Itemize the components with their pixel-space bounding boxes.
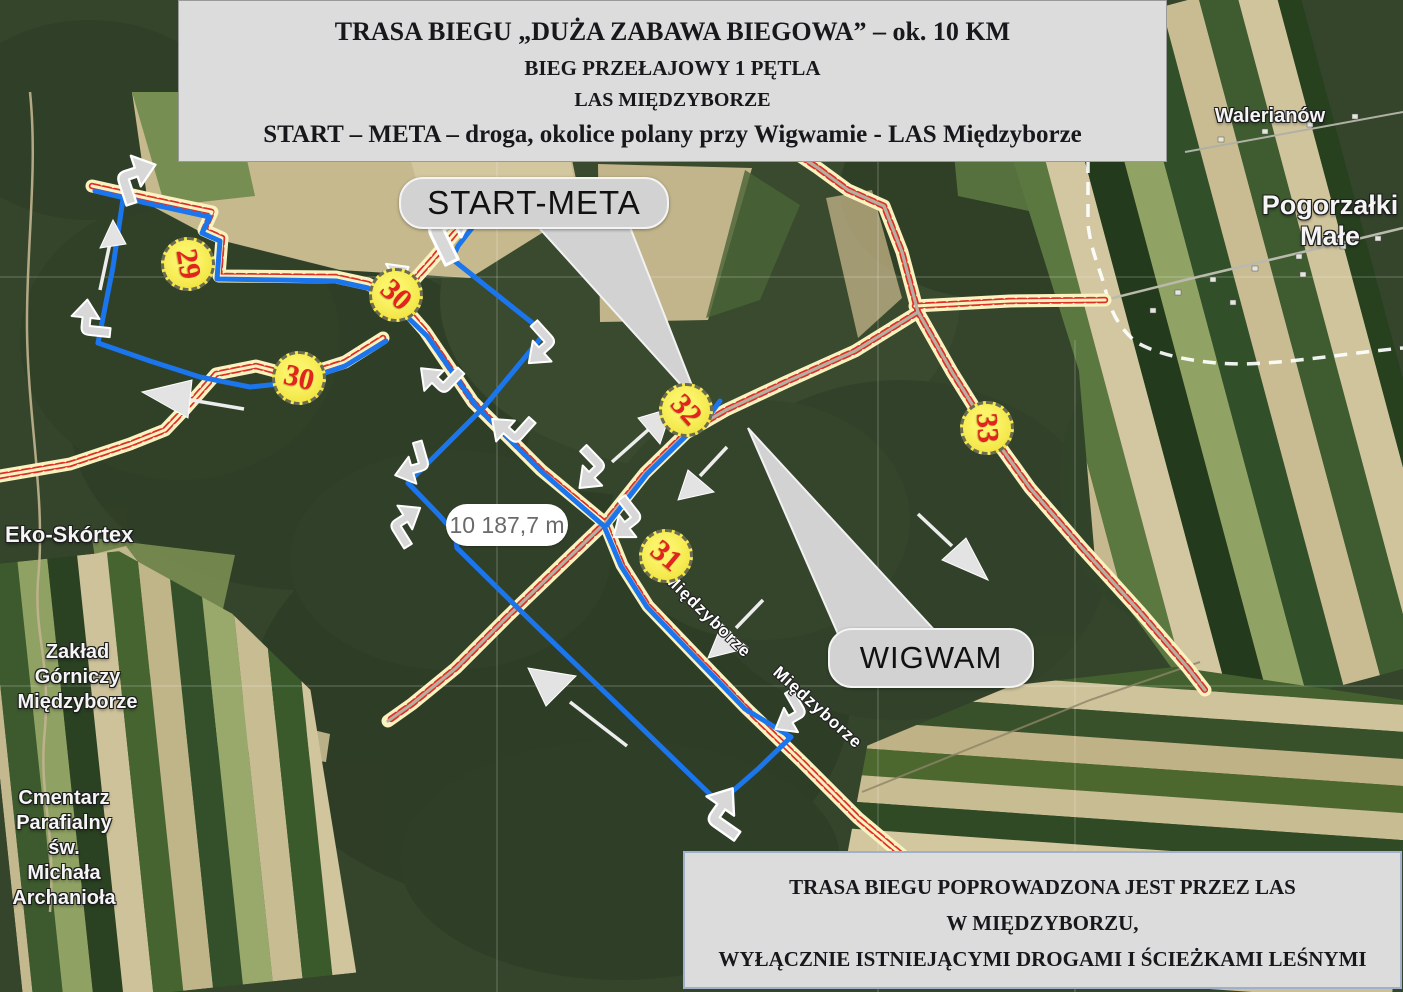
wigwam-callout-text: WIGWAM [860,640,1003,676]
place-label-line: Górniczy [10,665,145,690]
place-label-line: Archanioła [0,886,128,911]
checkpoint-marker-32[interactable]: 32 [659,383,713,437]
checkpoint-number: 30 [280,358,317,398]
checkpoint-marker-30a[interactable]: 30 [369,268,423,322]
banner-title-line: START – META – droga, okolice polany prz… [179,121,1166,149]
checkpoint-marker-31[interactable]: 31 [639,529,693,583]
distance-measurement-label: 10 187,7 m [446,504,568,546]
place-label-line: Międzyborze [10,690,145,715]
place-label-zaklad-gorniczy: Zakład Górniczy Międzyborze [10,640,145,715]
checkpoint-number: 29 [169,246,208,281]
checkpoint-number: 32 [663,387,708,432]
checkpoint-marker-30b[interactable]: 30 [272,351,326,405]
place-label-eko-skortex: Eko-Skórtex [5,522,133,547]
place-label-line: Małe [1245,221,1403,252]
banner-title-line: BIEG PRZEŁAJOWY 1 PĘTLA [179,56,1166,81]
place-label-line: Parafialny św. [0,811,128,861]
route-map[interactable]: Walerianów Pogorzałki Małe Eko-Skórtex Z… [0,0,1403,992]
start-meta-callout: START-META [399,177,669,229]
banner-title-line: TRASA BIEGU „DUŻA ZABAWA BIEGOWA” – ok. … [179,17,1166,47]
checkpoint-marker-29[interactable]: 29 [161,237,215,291]
place-label-line: Pogorzałki [1245,190,1403,221]
place-label-pogorzalki: Pogorzałki Małe [1245,190,1403,252]
banner-info-line: TRASA BIEGU POPROWADZONA JEST PRZEZ LAS [685,875,1400,900]
wigwam-callout: WIGWAM [828,628,1034,688]
banner-title-line: LAS MIĘDZYBORZE [179,89,1166,112]
checkpoint-number: 30 [373,272,418,317]
checkpoint-marker-33[interactable]: 33 [960,401,1014,455]
place-label-line: Michała [0,861,128,886]
checkpoint-number: 31 [644,533,689,578]
place-label-cmentarz: Cmentarz Parafialny św. Michała Archanio… [0,786,128,911]
top-title-banner: TRASA BIEGU „DUŻA ZABAWA BIEGOWA” – ok. … [178,0,1167,162]
start-meta-callout-text: START-META [427,184,641,222]
place-label-line: Zakład [10,640,145,665]
banner-info-line: W MIĘDZYBORZU, [685,911,1400,936]
place-label-line: Cmentarz [0,786,128,811]
place-label-walerianow: Walerianów [1205,104,1335,129]
distance-value: 10 187,7 m [449,512,564,539]
banner-info-line: WYŁĄCZNIE ISTNIEJĄCYMI DROGAMI I ŚCIEŻKA… [685,947,1400,972]
bottom-info-banner: TRASA BIEGU POPROWADZONA JEST PRZEZ LAS … [683,851,1402,989]
checkpoint-number: 33 [969,412,1005,444]
